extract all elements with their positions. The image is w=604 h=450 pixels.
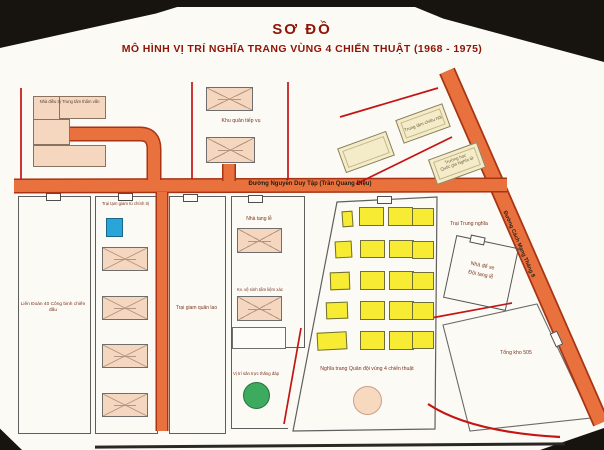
building-cream-1 bbox=[337, 131, 395, 173]
gate-military-prison bbox=[183, 194, 198, 202]
map-photo: Nhà điều trị Trung tâm thẩm vấn Khu quân… bbox=[0, 0, 604, 450]
grave-block bbox=[388, 207, 413, 226]
gate-engineer bbox=[46, 193, 61, 201]
gate-political-prison bbox=[118, 193, 133, 201]
map-subtitle: MÔ HÌNH VỊ TRÍ NGHĨA TRANG VÙNG 4 CHIẾN … bbox=[0, 43, 604, 55]
grave-block bbox=[330, 272, 351, 291]
grave-block bbox=[326, 302, 349, 320]
grave-block bbox=[359, 207, 384, 226]
building-supply-2 bbox=[206, 137, 255, 163]
grave-block bbox=[341, 211, 353, 228]
label-cemetery: Nghĩa trang Quân đội vùng 4 chiến thuật bbox=[302, 367, 432, 373]
building-chieu-hoi: Trung tâm chiêu hồi bbox=[395, 103, 451, 144]
label-supply-area: Khu quân tiếp vụ bbox=[198, 119, 284, 125]
building-interrogation-wing-bottom bbox=[33, 145, 106, 167]
compound-mortuary-lower-left-border bbox=[231, 346, 232, 429]
label-funeral-home: Nhà tang lễ bbox=[236, 217, 282, 223]
gate-cemetery bbox=[377, 196, 392, 204]
compound-engineer-battalion bbox=[18, 196, 91, 434]
grave-block bbox=[360, 301, 385, 320]
photo-corner-bottom-right bbox=[540, 428, 604, 450]
gate-depot bbox=[550, 331, 564, 348]
grave-block bbox=[389, 240, 414, 258]
building-school: Trường học Quốc gia Nghĩa tử bbox=[428, 142, 486, 185]
label-interrogation-center: Nhà điều trị Trung tâm thẩm vấn bbox=[35, 100, 104, 105]
grave-block bbox=[412, 331, 434, 349]
label-trung-nghia: Trại Trung nghĩa bbox=[440, 222, 498, 228]
grave-block bbox=[389, 271, 414, 290]
gate-mortuary bbox=[248, 195, 263, 203]
label-military-prison: Trại giam quân lao bbox=[170, 306, 223, 312]
helipad-circle bbox=[243, 382, 270, 409]
label-depot: Tổng kho 505 bbox=[487, 351, 545, 357]
label-helipad: Vị trí sân trực thăng đáp bbox=[226, 372, 286, 377]
grave-block bbox=[412, 241, 434, 259]
grave-block bbox=[412, 272, 434, 290]
label-chieu-hoi: Trung tâm chiêu hồi bbox=[397, 104, 450, 142]
grave-block bbox=[389, 301, 414, 320]
board-edge-bottom bbox=[95, 442, 565, 448]
building-white-shed bbox=[232, 327, 286, 349]
building-prison-barrack-4 bbox=[102, 393, 148, 417]
depot-boundary bbox=[443, 304, 591, 431]
assembly-circle bbox=[353, 386, 382, 415]
grave-block bbox=[389, 331, 414, 350]
grave-block bbox=[335, 241, 353, 259]
building-funeral-home bbox=[237, 228, 282, 253]
building-morgue bbox=[237, 296, 282, 321]
grave-block bbox=[317, 331, 348, 351]
building-funeral-garage: Nhà để xe Đội tang lễ bbox=[443, 235, 519, 311]
grave-block bbox=[360, 331, 385, 350]
building-interrogation-wing-mid bbox=[33, 119, 70, 145]
blue-block bbox=[106, 218, 123, 237]
grave-block bbox=[360, 271, 385, 290]
grave-block bbox=[360, 240, 385, 258]
building-prison-barrack-3 bbox=[102, 344, 148, 368]
building-prison-barrack-1 bbox=[102, 247, 148, 271]
label-road-main: Đường Nguyễn Duy Tập (Trần Quang Diệu) bbox=[228, 181, 392, 187]
compound-military-prison bbox=[169, 196, 226, 434]
grave-block bbox=[412, 302, 434, 320]
label-engineer-battalion: Liên Đoàn 40 Công binh chiến đấu bbox=[20, 302, 86, 313]
label-political-prison: Trại tạm giam tù chính trị bbox=[96, 202, 155, 207]
label-morgue: Kv. vệ sinh tẩm liệm xác bbox=[232, 288, 288, 293]
building-prison-barrack-2 bbox=[102, 296, 148, 320]
label-garage-2: Đội tang lễ bbox=[468, 269, 494, 280]
compound-mortuary-lower-bottom-border bbox=[231, 428, 288, 429]
building-supply-1 bbox=[206, 87, 253, 111]
grave-block bbox=[412, 208, 434, 226]
